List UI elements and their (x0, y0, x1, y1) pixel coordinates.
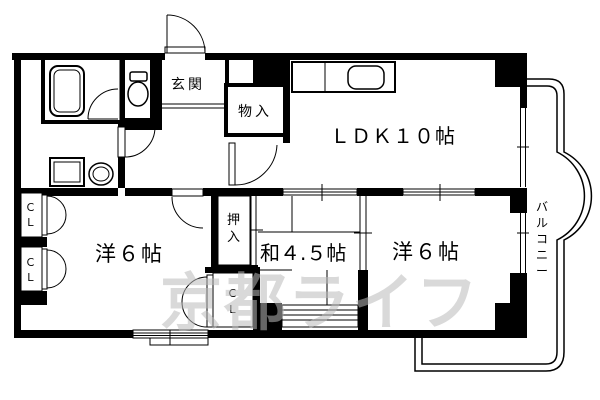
entrance (162, 15, 228, 108)
svg-text:押: 押 (227, 213, 240, 228)
label-western-room-right: 洋６帖 (392, 240, 461, 264)
west-room-door (172, 189, 203, 228)
entrance-step (162, 104, 228, 108)
svg-text:コ: コ (536, 232, 548, 246)
svg-text:Ｃ: Ｃ (25, 201, 36, 214)
label-washitsu: 和４.５帖 (260, 241, 346, 265)
bathtub-icon (50, 66, 84, 116)
svg-text:ー: ー (536, 264, 548, 278)
label-genkan: 玄関 (171, 76, 205, 93)
label-balcony: バ ル コ ニ ー (536, 200, 548, 278)
svg-text:ニ: ニ (536, 248, 548, 262)
storage-closet (226, 85, 285, 185)
bath-door (88, 89, 118, 119)
washer-icon (50, 158, 84, 186)
entrance-door (165, 15, 205, 53)
floorplan-svg: 玄関 物入 ＬＤＫ１０帖 和４.５帖 洋６帖 洋６帖 押 入 Ｃ Ｌ Ｃ Ｌ Ｃ… (0, 0, 600, 400)
washroom-door (118, 127, 155, 157)
kitchen-counter (292, 62, 395, 92)
svg-text:入: 入 (227, 230, 240, 245)
toilet-icon (128, 72, 148, 106)
floorplan: 玄関 物入 ＬＤＫ１０帖 和４.５帖 洋６帖 洋６帖 押 入 Ｃ Ｌ Ｃ Ｌ Ｃ… (0, 0, 600, 400)
svg-text:Ｌ: Ｌ (25, 271, 36, 284)
hall-door (229, 143, 277, 185)
svg-text:Ｃ: Ｃ (25, 256, 36, 269)
basin-icon (89, 163, 113, 185)
bathroom (43, 58, 123, 122)
svg-text:Ｌ: Ｌ (25, 216, 36, 229)
svg-text:バ: バ (536, 200, 548, 214)
closet-left-1 (21, 193, 66, 237)
label-monoire: 物入 (238, 104, 272, 120)
closet-left-2 (21, 247, 66, 291)
washroom (50, 127, 155, 186)
label-ldk: ＬＤＫ１０帖 (330, 124, 456, 148)
watermark-logo: 京都ライフ (160, 266, 480, 339)
toilet-room (121, 58, 152, 120)
label-western-room-left: 洋６帖 (95, 242, 164, 266)
svg-text:ル: ル (536, 216, 548, 230)
